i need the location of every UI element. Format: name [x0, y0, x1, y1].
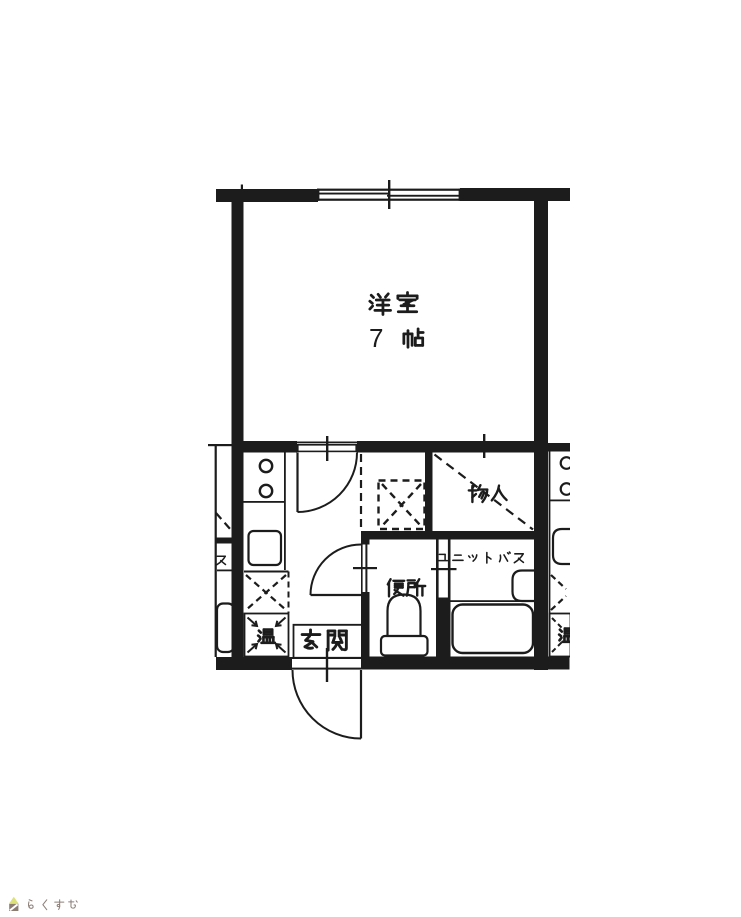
svg-text:7: 7 — [369, 323, 383, 353]
